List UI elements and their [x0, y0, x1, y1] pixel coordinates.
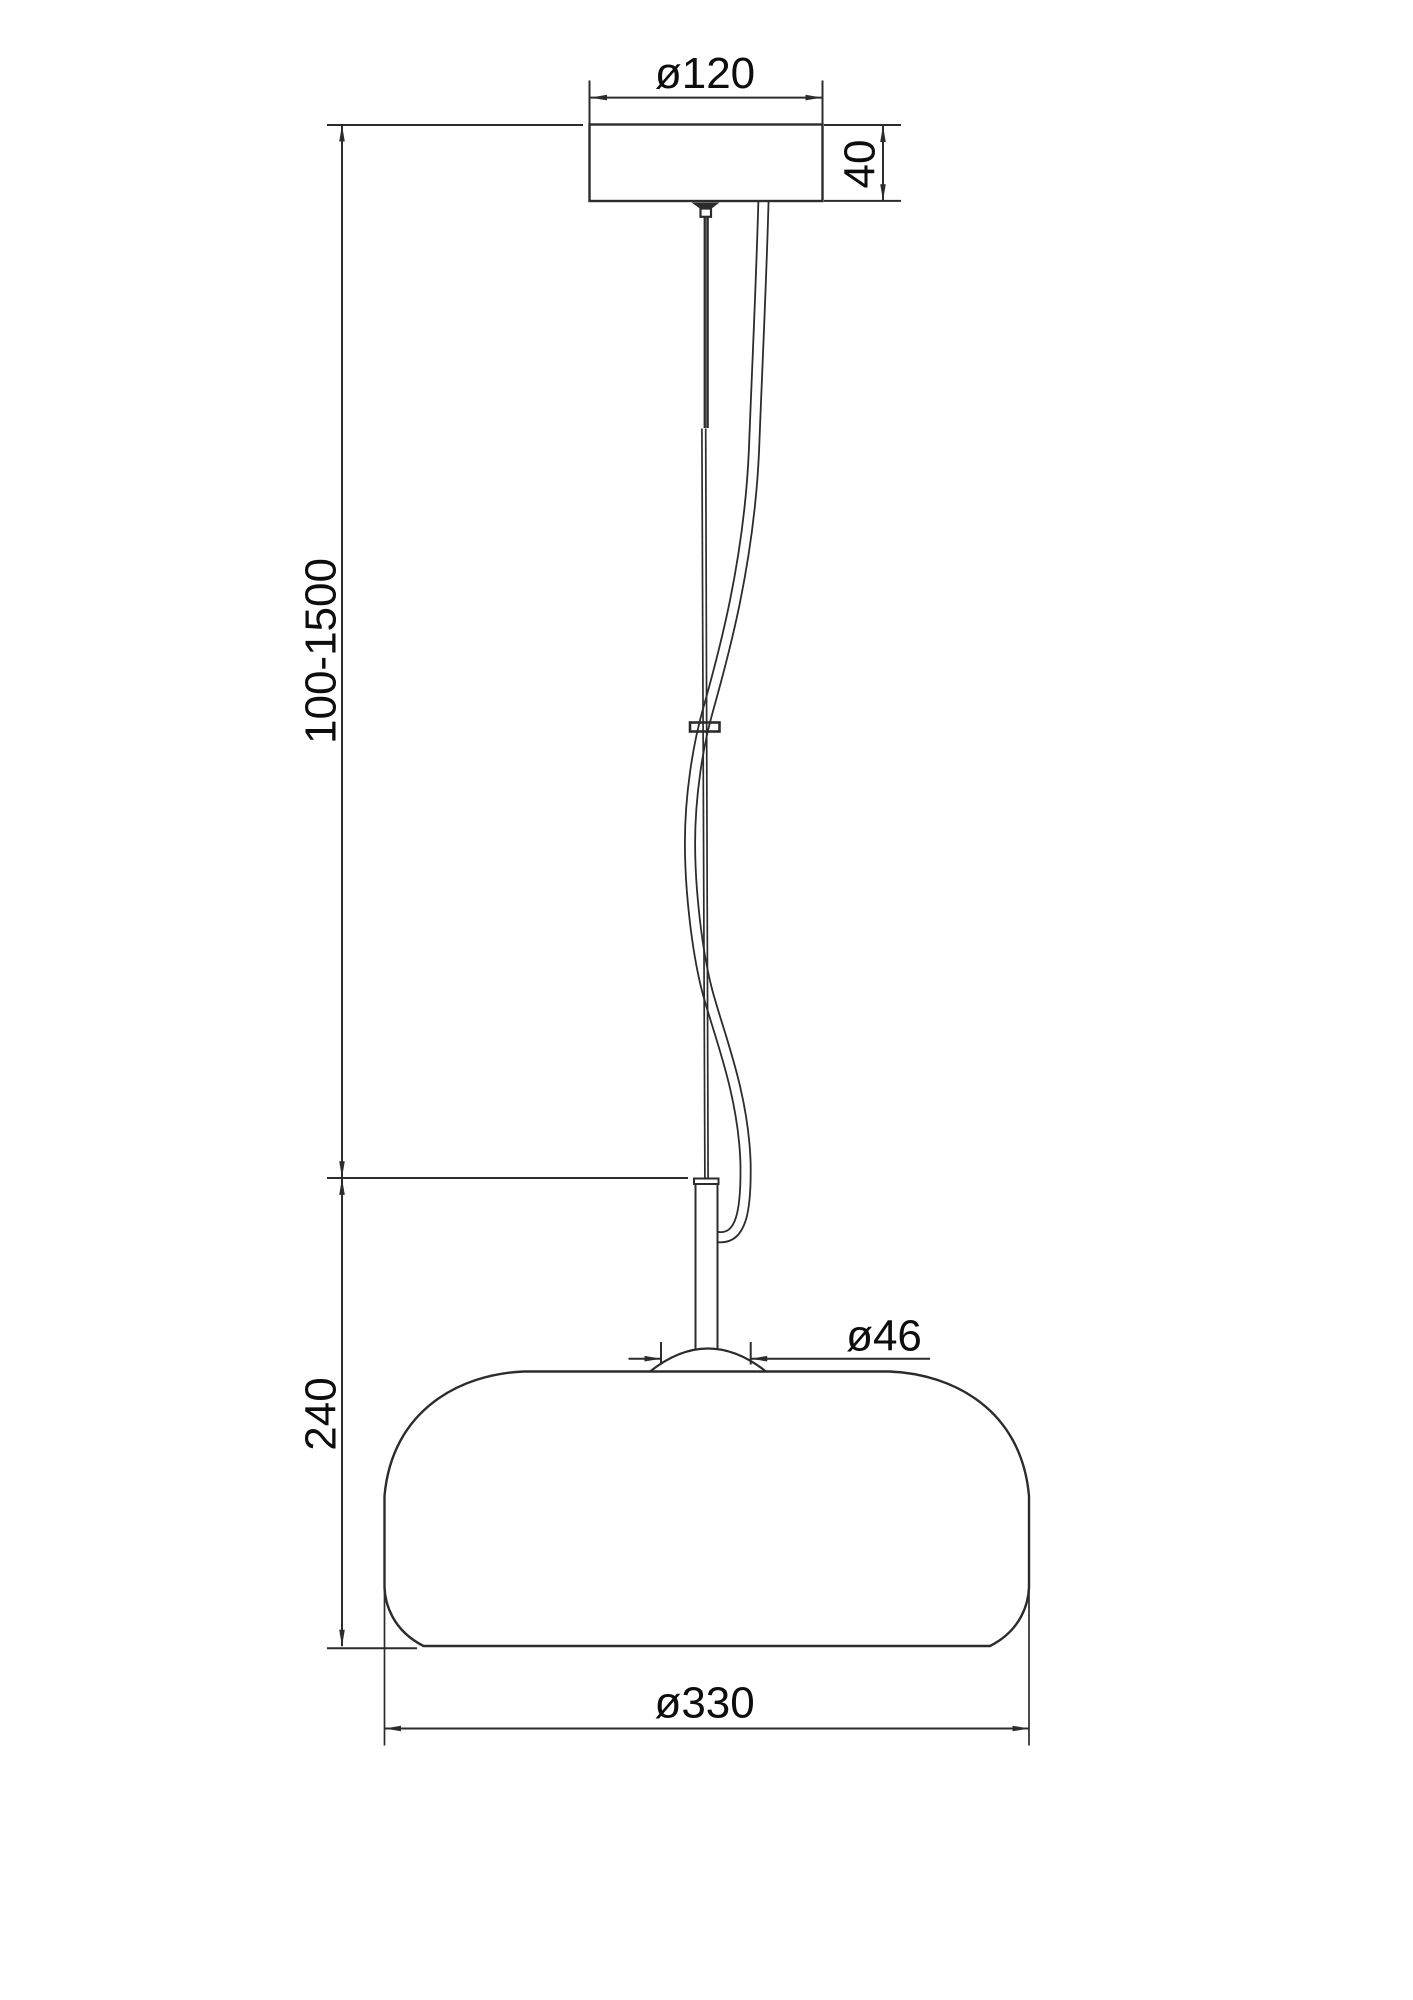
svg-text:ø120: ø120: [655, 49, 755, 98]
svg-text:ø330: ø330: [654, 1679, 754, 1728]
svg-text:240: 240: [297, 1377, 346, 1450]
svg-text:40: 40: [836, 140, 885, 189]
svg-text:ø46: ø46: [846, 1312, 922, 1361]
svg-text:100-1500: 100-1500: [297, 558, 346, 744]
